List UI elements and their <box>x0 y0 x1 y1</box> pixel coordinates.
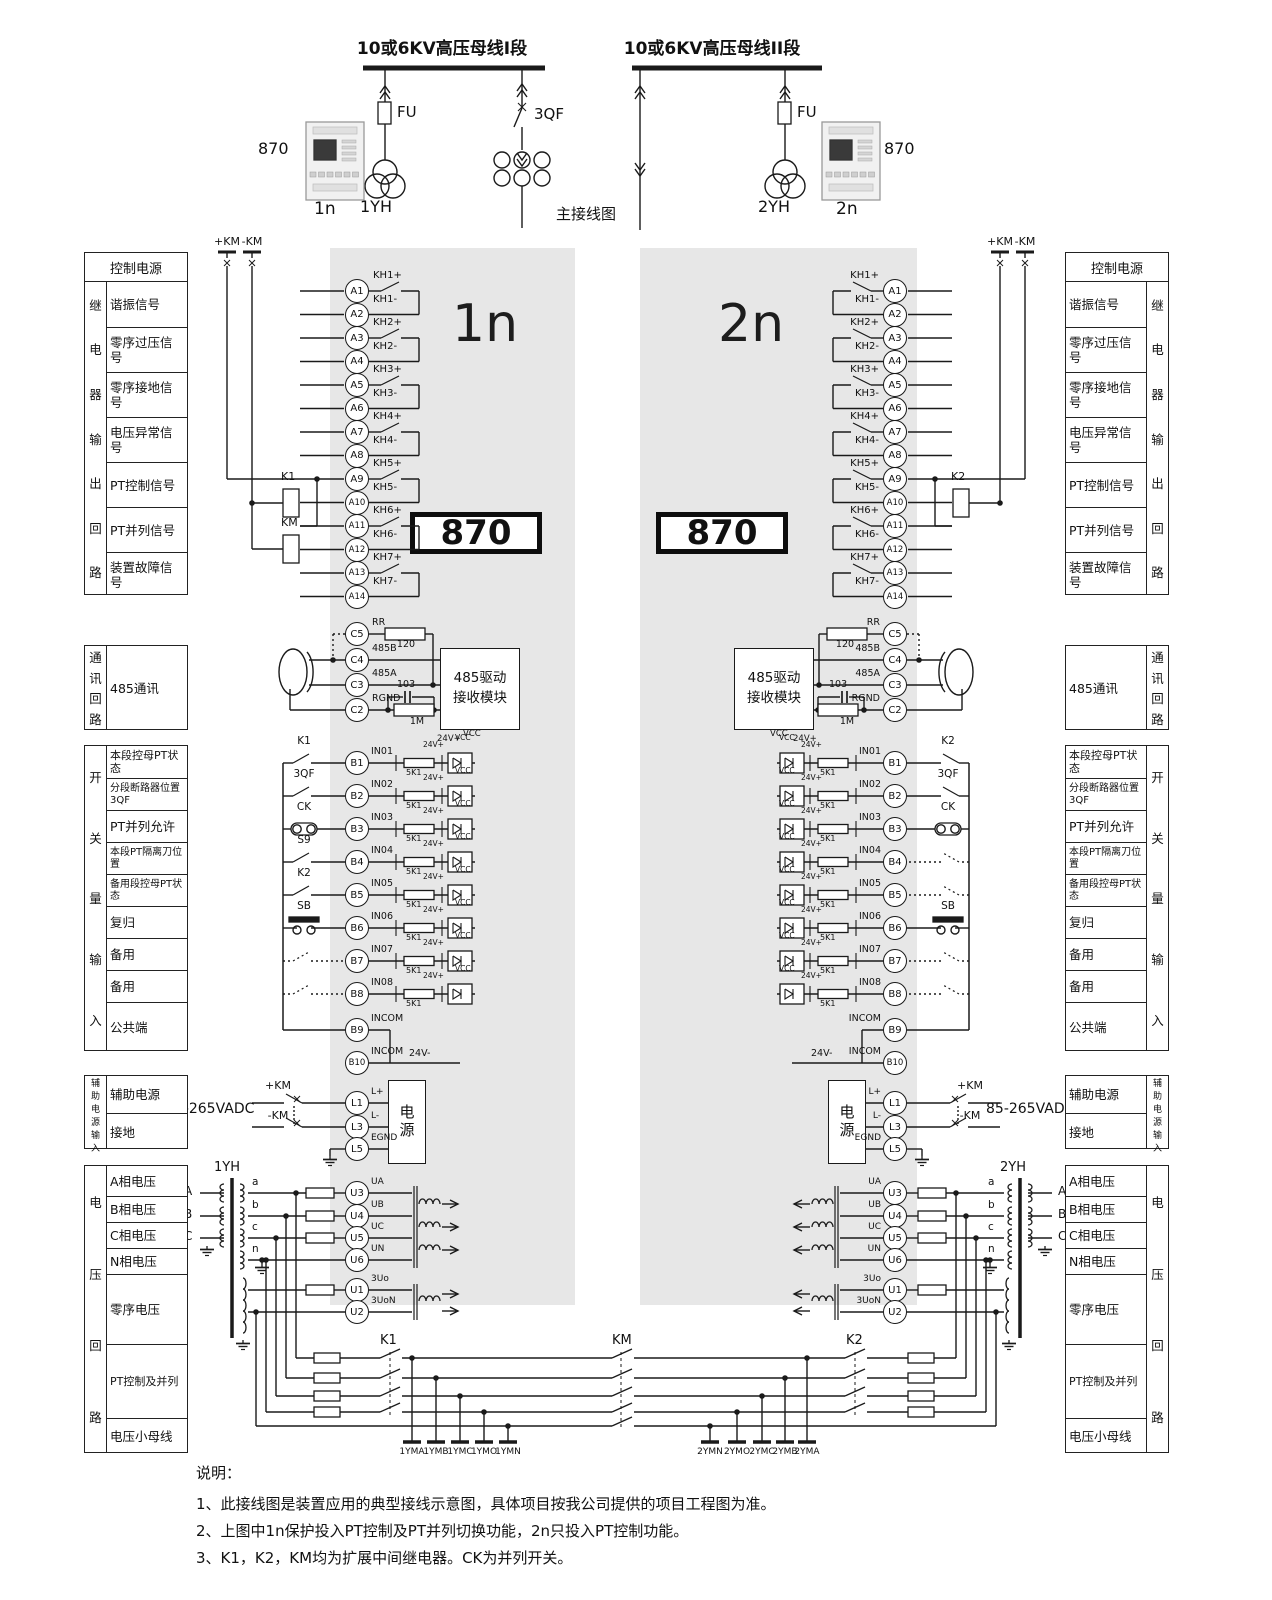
wiring-art <box>0 0 1272 1600</box>
wiring-diagram-page: 1n 870 2n 870 10或6KV高压母线I段 10或6KV高压母线II段… <box>0 0 1272 1600</box>
